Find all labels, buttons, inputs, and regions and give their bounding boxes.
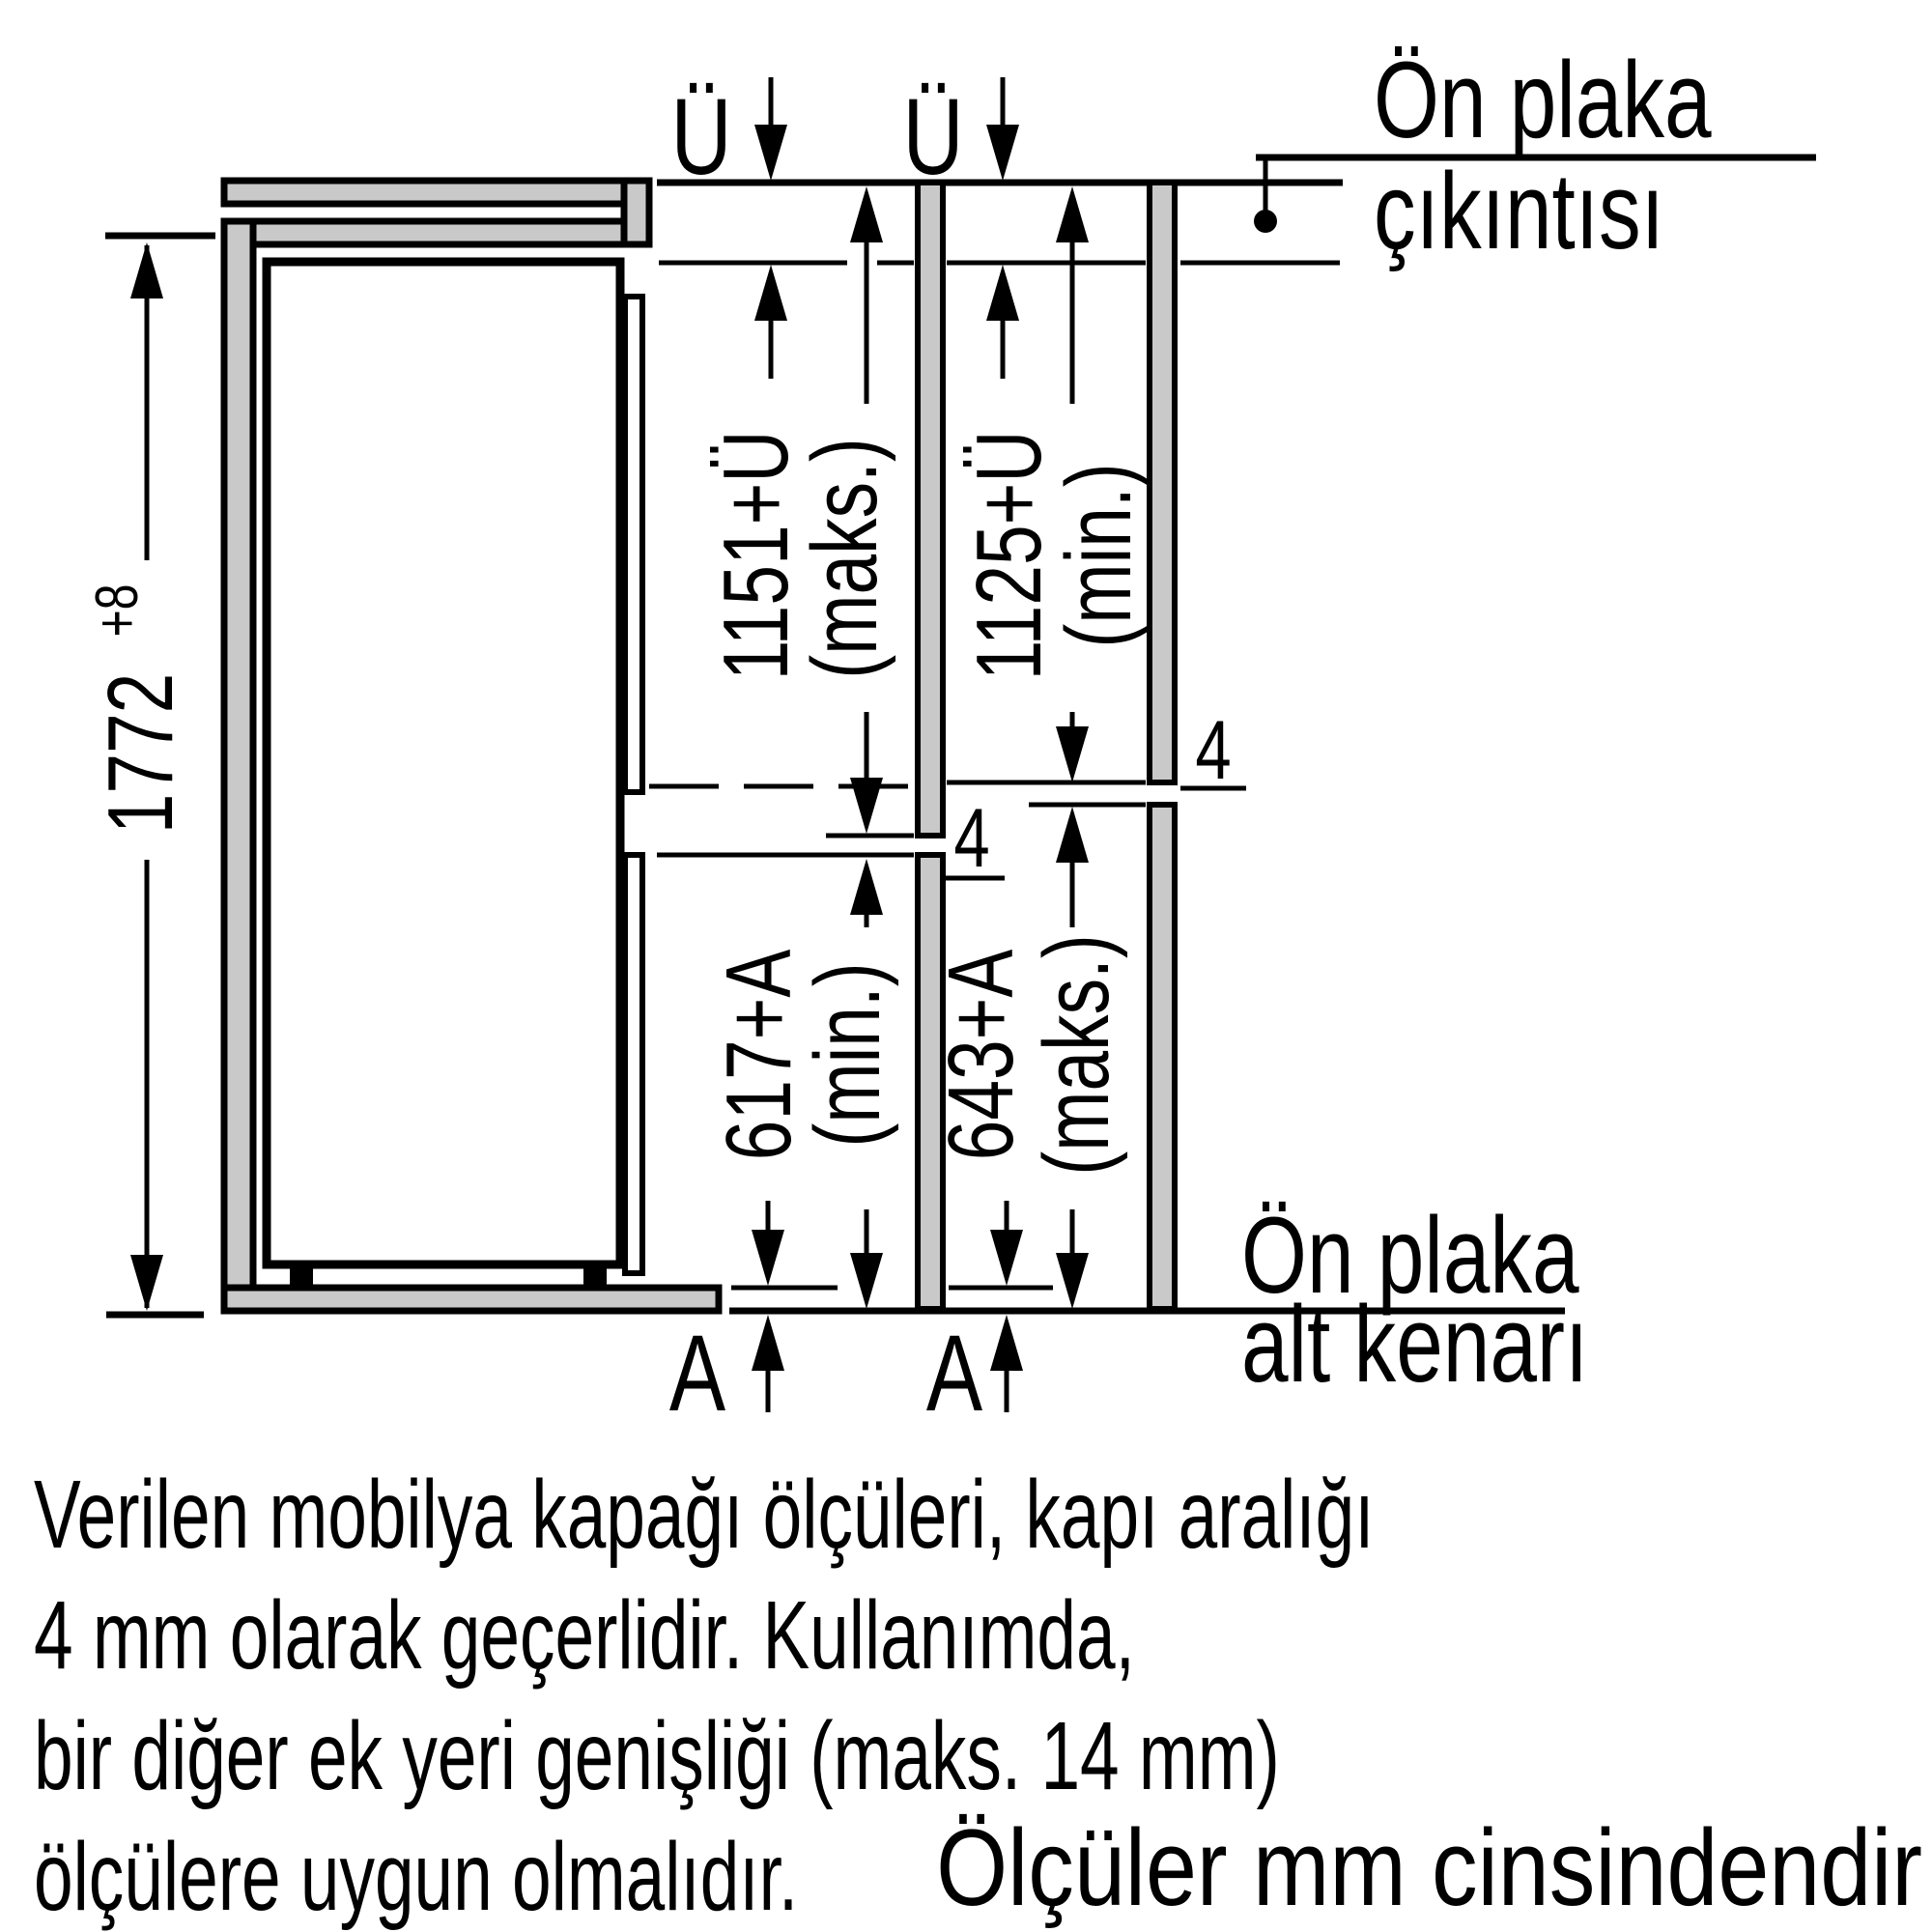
arrow-up-icon <box>754 265 787 321</box>
installation-diagram-sheet: 4 4 1772 +8 Ü Ü 1151+Ü (maks.) <box>0 0 1932 1932</box>
arrow-up-icon <box>990 1315 1023 1371</box>
front-panel-right-lower <box>1150 805 1175 1309</box>
arrow-down-icon <box>752 1230 784 1286</box>
appliance-door-lower <box>625 855 642 1273</box>
arrow-down-icon <box>130 1255 163 1311</box>
a-left-label: A <box>669 1314 725 1435</box>
appliance-foot-left <box>290 1264 313 1290</box>
niche-height-tolerance: +8 <box>83 583 150 637</box>
upper-left-dim-qualifier: (maks.) <box>793 438 896 679</box>
a-right-label: A <box>926 1314 982 1435</box>
units-note: Ölçüler mm cinsindendir <box>936 1808 1922 1929</box>
bottom-edge-label-line2: alt kenarı <box>1241 1285 1588 1406</box>
arrow-down-icon <box>754 125 787 181</box>
cabinet-top-inner-bar <box>224 221 626 244</box>
overhang-leader-dot <box>1254 210 1277 233</box>
niche-height-value: 1772 <box>89 673 192 835</box>
upper-left-dim-value: 1151+Ü <box>704 431 808 681</box>
dimension-u-left: Ü <box>670 77 787 379</box>
callout-front-plate-bottom-edge: Ön plaka alt kenarı <box>1241 1196 1588 1406</box>
u-right-label: Ü <box>902 77 963 198</box>
arrow-up-icon <box>752 1315 784 1371</box>
callout-front-plate-overhang: Ön plaka çıkıntısı <box>1254 41 1816 272</box>
arrow-up-icon <box>850 859 883 915</box>
u-left-label: Ü <box>670 77 731 198</box>
installation-diagram: 4 4 1772 +8 Ü Ü 1151+Ü (maks.) <box>0 0 1932 1932</box>
note-line: bir diğer ek yeri genişliği (maks. 14 mm… <box>34 1702 1280 1810</box>
lower-right-dim-value: 643+A <box>929 949 1033 1160</box>
lower-right-dim-qualifier: (maks.) <box>1025 934 1128 1176</box>
dimension-upper-right: 1125+Ü (min.) <box>957 186 1151 782</box>
front-panel-left-upper <box>918 183 943 836</box>
front-panel-right-upper <box>1150 183 1175 782</box>
arrow-up-icon <box>1056 186 1089 242</box>
overhang-label-line1: Ön plaka <box>1374 41 1712 161</box>
arrow-up-icon <box>850 186 883 242</box>
arrow-up-icon <box>986 265 1019 321</box>
note-line: Verilen mobilya kapağı ölçüleri, kapı ar… <box>34 1461 1375 1569</box>
arrow-down-icon <box>850 778 883 834</box>
appliance-door-upper <box>625 297 642 792</box>
arrow-up-icon <box>130 242 163 298</box>
gap-right-label: 4 <box>1195 704 1231 797</box>
upper-right-dim-qualifier: (min.) <box>1047 463 1151 647</box>
dimension-niche-height: 1772 +8 <box>83 236 215 1315</box>
arrow-down-icon <box>1056 726 1089 782</box>
appliance <box>267 262 642 1290</box>
arrow-down-icon <box>1056 1253 1089 1309</box>
appliance-body <box>267 262 620 1264</box>
arrow-up-icon <box>1056 807 1089 863</box>
dimension-upper-left: 1151+Ü (maks.) <box>704 186 896 834</box>
cabinet-floor <box>224 1288 719 1311</box>
lower-left-dim-qualifier: (min.) <box>796 962 899 1147</box>
arrow-down-icon <box>990 1230 1023 1286</box>
gap-left-label: 4 <box>953 792 989 885</box>
dimension-lower-left: 617+A (min.) <box>707 859 899 1309</box>
upper-right-dim-value: 1125+Ü <box>957 431 1061 681</box>
arrow-down-icon <box>986 125 1019 181</box>
dimension-a-left: A <box>669 1201 838 1435</box>
front-panel-right <box>1150 183 1175 1309</box>
note-line: ölçülere uygun olmalıdır. <box>34 1823 798 1931</box>
cabinet-top-end-cap <box>624 181 649 244</box>
cabinet-top-outer-bar <box>224 181 649 204</box>
note-line: 4 mm olarak geçerlidir. Kullanımda, <box>34 1581 1135 1690</box>
cabinet-left-wall <box>224 221 253 1309</box>
appliance-foot-right <box>583 1264 607 1290</box>
lower-left-dim-value: 617+A <box>707 949 810 1160</box>
arrow-down-icon <box>850 1253 883 1309</box>
overhang-label-line2: çıkıntısı <box>1374 152 1664 272</box>
